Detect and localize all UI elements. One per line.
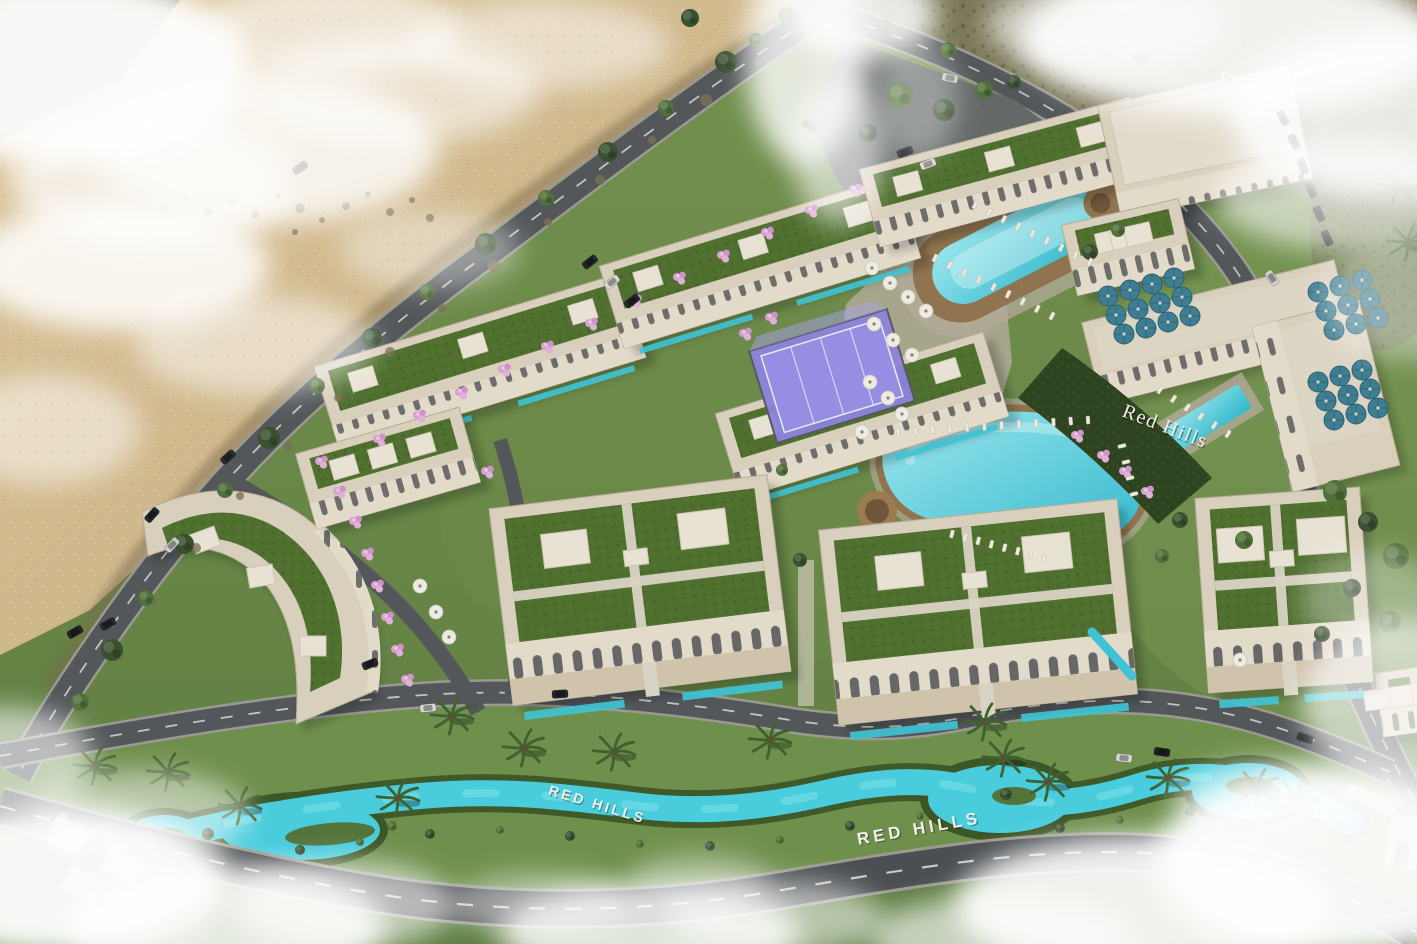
tree (258, 427, 280, 449)
teal-umbrella (1368, 398, 1388, 418)
cloud (135, 295, 375, 395)
sun-lounger (948, 425, 952, 433)
tree (1323, 480, 1347, 504)
tree (356, 838, 364, 846)
sun-lounger (1000, 421, 1004, 429)
teal-umbrella (1136, 318, 1156, 338)
teal-umbrella (1098, 286, 1118, 306)
teal-umbrella (1330, 366, 1350, 386)
white-umbrella (413, 579, 427, 593)
rock (385, 347, 395, 357)
tree (496, 826, 504, 834)
tree (1000, 788, 1012, 800)
rock (236, 492, 244, 500)
tree (705, 841, 715, 851)
tree (1055, 823, 1065, 833)
teal-umbrella (1316, 391, 1336, 411)
rock (283, 441, 293, 451)
walkway (798, 560, 814, 706)
tree (845, 821, 855, 831)
teal-umbrella (1128, 299, 1148, 319)
roof-structure (246, 564, 275, 588)
white-umbrella (919, 304, 933, 318)
sun-lounger (1051, 418, 1055, 426)
teal-umbrella (1120, 280, 1140, 300)
rock (292, 229, 298, 235)
sun-lounger (930, 426, 934, 434)
cloud (793, 75, 883, 225)
tree (217, 482, 233, 498)
white-umbrella (855, 425, 869, 439)
sun-lounger (982, 422, 986, 430)
courtyard-building-center (819, 498, 1147, 741)
rock (700, 94, 712, 106)
teal-umbrella (1346, 404, 1366, 424)
white-umbrella (863, 375, 877, 389)
tree (1116, 816, 1124, 824)
roof-structure (1269, 550, 1294, 568)
roof-structure (300, 636, 326, 656)
tree (975, 81, 993, 99)
white-umbrella (905, 348, 919, 362)
roof-structure (541, 529, 591, 568)
roof-structure (623, 548, 649, 567)
tree (295, 845, 305, 855)
teal-umbrella (1308, 372, 1328, 392)
teal-umbrella (1324, 410, 1344, 430)
teal-umbrella (1338, 385, 1358, 405)
sun-lounger (1086, 416, 1090, 424)
cloud (340, 210, 520, 290)
white-umbrella (886, 333, 900, 347)
sun-lounger (913, 427, 917, 435)
white-umbrella (895, 407, 909, 421)
tree (681, 9, 699, 27)
sun-lounger (1034, 419, 1038, 427)
tree (636, 840, 644, 848)
tree (1358, 512, 1378, 532)
tree (793, 553, 807, 567)
white-umbrella (865, 261, 879, 275)
white-umbrella (442, 630, 456, 644)
rock (595, 175, 605, 185)
cloud (1175, 760, 1355, 840)
tree (71, 693, 89, 711)
white-umbrella (883, 276, 897, 290)
white-umbrella (901, 290, 915, 304)
rock (334, 394, 342, 402)
tree (1007, 75, 1021, 89)
tree (598, 142, 618, 162)
sun-lounger (965, 424, 969, 432)
roof-structure (677, 508, 729, 550)
tree (101, 639, 123, 661)
roof-structure (1021, 532, 1073, 573)
tree (1235, 531, 1253, 549)
tree (425, 829, 435, 839)
pool-bar (865, 499, 889, 523)
canal-island (992, 787, 1036, 805)
teal-umbrella (1164, 268, 1184, 288)
teal-umbrella (1352, 360, 1372, 380)
cloud (878, 40, 958, 160)
cloud (30, 770, 250, 860)
white-umbrella (1233, 653, 1247, 667)
tree (1082, 244, 1098, 260)
tree (1155, 549, 1169, 563)
sun-lounger (1017, 420, 1021, 428)
tree (776, 464, 788, 476)
tree (387, 821, 397, 831)
teal-umbrella (1114, 324, 1134, 344)
teal-umbrella (1106, 305, 1126, 325)
tree (916, 812, 924, 820)
teal-umbrella (1172, 287, 1192, 307)
cloud (630, 854, 770, 906)
rock (648, 136, 656, 144)
tree (715, 51, 737, 73)
entrance-walkway (1282, 661, 1298, 696)
cloud (450, 873, 630, 937)
teal-umbrella (1142, 274, 1162, 294)
sun-lounger (896, 428, 900, 436)
aerial-masterplan-render: Red Hills Red Hills RED HILLS RED HILLS … (0, 0, 1417, 944)
tree (1111, 223, 1125, 237)
tree (565, 831, 575, 841)
rock (544, 218, 552, 226)
tree (138, 590, 154, 606)
tree (538, 190, 554, 206)
teal-umbrella (1158, 312, 1178, 332)
roof-structure (1296, 516, 1346, 555)
car (1116, 753, 1133, 763)
white-umbrella (881, 391, 895, 405)
teal-umbrella (1360, 379, 1380, 399)
white-umbrella (429, 605, 443, 619)
teal-umbrella (1150, 293, 1170, 313)
courtyard-building-west (489, 474, 801, 722)
car (420, 703, 437, 713)
tree (1172, 512, 1188, 528)
roof-structure (875, 552, 924, 591)
white-umbrella (867, 317, 881, 331)
rock (409, 197, 415, 203)
rock (438, 304, 446, 312)
teal-umbrella (1180, 306, 1200, 326)
sun-lounger (1069, 417, 1073, 425)
car (552, 689, 569, 698)
cloud (10, 110, 290, 250)
tree (776, 836, 784, 844)
tree (658, 100, 674, 116)
roof-structure (962, 571, 988, 589)
